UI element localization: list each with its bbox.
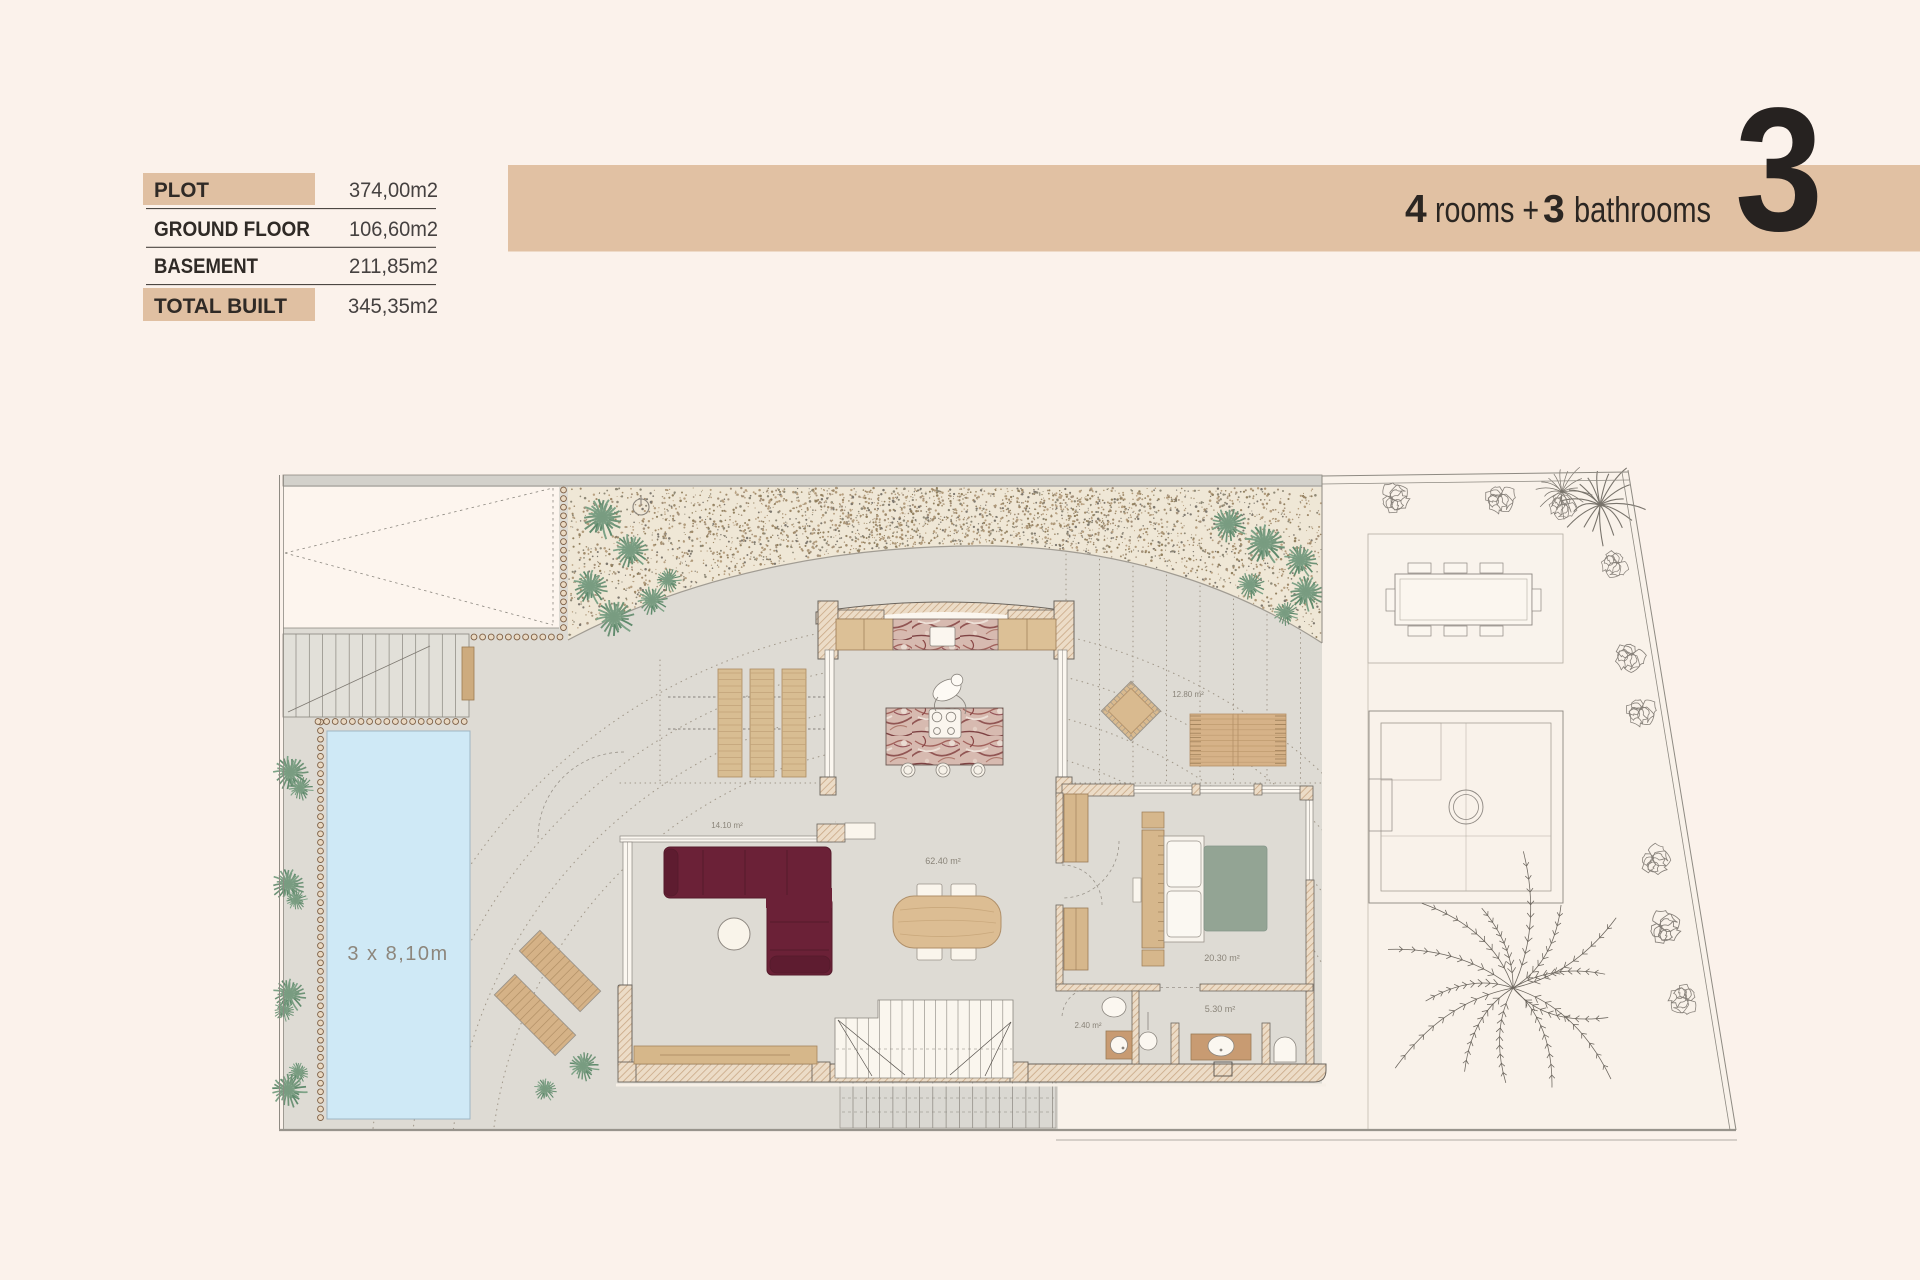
svg-text:5.30 m²: 5.30 m² — [1205, 1004, 1236, 1014]
svg-text:bathrooms: bathrooms — [1574, 189, 1711, 230]
svg-text:BASEMENT: BASEMENT — [154, 255, 258, 278]
svg-text:rooms +: rooms + — [1435, 189, 1539, 230]
svg-text:211,85m2: 211,85m2 — [349, 255, 438, 278]
svg-text:3: 3 — [1543, 188, 1565, 231]
svg-text:106,60m2: 106,60m2 — [349, 218, 438, 241]
svg-text:12.80 m²: 12.80 m² — [1172, 690, 1204, 699]
svg-text:PLOT: PLOT — [154, 179, 209, 202]
svg-text:374,00m2: 374,00m2 — [349, 179, 438, 202]
svg-text:4: 4 — [1405, 188, 1427, 231]
svg-text:62.40 m²: 62.40 m² — [925, 856, 961, 866]
svg-text:3: 3 — [1735, 72, 1823, 268]
svg-text:TOTAL BUILT: TOTAL BUILT — [154, 295, 287, 318]
svg-text:2.40 m²: 2.40 m² — [1074, 1021, 1101, 1030]
svg-text:GROUND FLOOR: GROUND FLOOR — [154, 218, 310, 241]
svg-text:14.10 m²: 14.10 m² — [711, 821, 743, 830]
svg-text:345,35m2: 345,35m2 — [348, 295, 438, 318]
svg-text:20.30 m²: 20.30 m² — [1204, 953, 1240, 963]
svg-text:3 x 8,10m: 3 x 8,10m — [347, 943, 448, 965]
